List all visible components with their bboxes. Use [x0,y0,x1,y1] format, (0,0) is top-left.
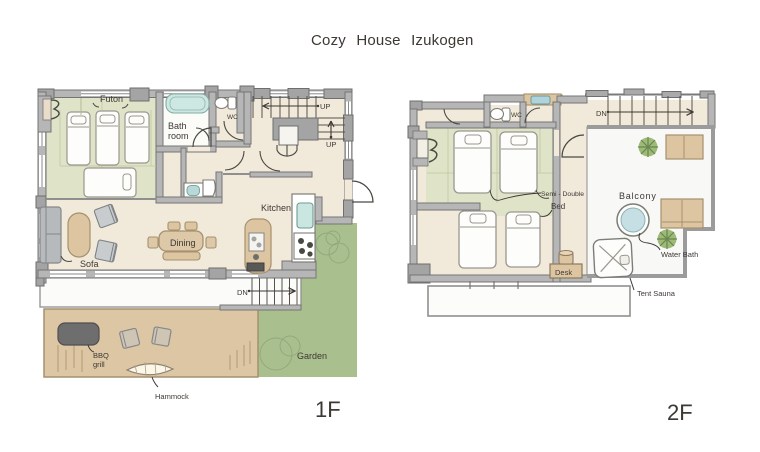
svg-text:room: room [168,131,189,141]
svg-text:DN: DN [237,288,248,297]
svg-text:UP: UP [320,102,330,111]
svg-text:WC: WC [227,114,238,121]
svg-text:1F: 1F [315,397,341,422]
svg-text:UP: UP [326,140,336,149]
svg-text:Water Bath: Water Bath [661,250,698,259]
svg-text:Kitchen: Kitchen [261,203,291,213]
svg-text:BBQ: BBQ [93,351,109,360]
svg-text:Hammock: Hammock [155,392,189,401]
svg-text:Garden: Garden [297,351,327,361]
svg-text:Semi - Double: Semi - Double [541,191,584,198]
svg-text:Desk: Desk [555,268,572,277]
svg-text:Sofa: Sofa [80,259,99,269]
svg-text:DN: DN [596,109,607,118]
svg-text:2F: 2F [667,400,693,425]
svg-text:Bath: Bath [168,121,187,131]
svg-text:Cozy House Izukogen: Cozy House Izukogen [311,32,474,49]
svg-text:WC: WC [511,112,522,119]
svg-text:Tent Sauna: Tent Sauna [637,289,676,298]
svg-text:Balcony: Balcony [619,191,657,201]
svg-text:Bed: Bed [551,202,565,211]
svg-text:Dining: Dining [170,238,196,248]
svg-text:Futon: Futon [100,94,123,104]
svg-text:grill: grill [93,360,105,369]
